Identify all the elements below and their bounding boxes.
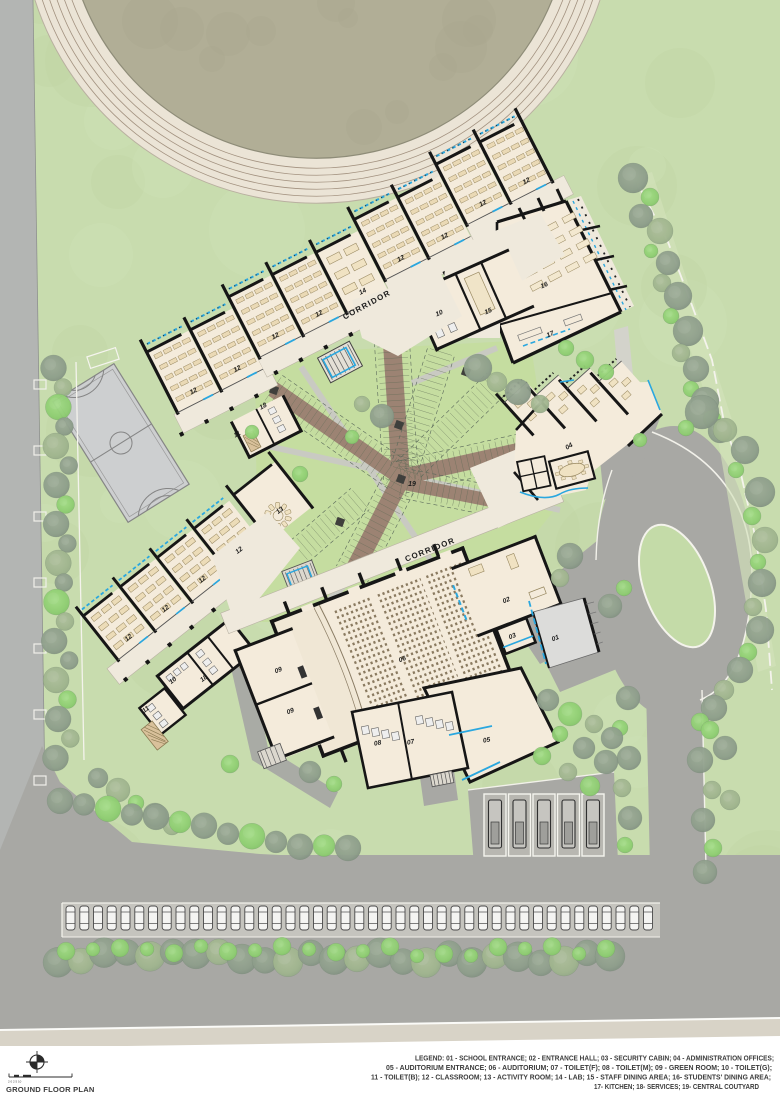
svg-text:2 0 2 5 10: 2 0 2 5 10	[8, 1080, 22, 1084]
svg-text:17- KITCHEN; 18- SERVICES; 19-: 17- KITCHEN; 18- SERVICES; 19- CENTRAL C…	[594, 1082, 759, 1091]
svg-text:11 - TOILET(B); 12 - CLASSROOM: 11 - TOILET(B); 12 - CLASSROOM; 13 - ACT…	[371, 1073, 771, 1082]
svg-text:05 - AUDITORIUM ENTRANCE; 06 -: 05 - AUDITORIUM ENTRANCE; 06 - AUDITORIU…	[386, 1063, 772, 1072]
svg-text:19: 19	[408, 481, 416, 488]
svg-text:LEGEND: 01 - SCHOOL ENTRANCE;: LEGEND: 01 - SCHOOL ENTRANCE; 02 - ENTRA…	[415, 1054, 774, 1063]
svg-text:GROUND FLOOR PLAN: GROUND FLOOR PLAN	[6, 1085, 95, 1094]
